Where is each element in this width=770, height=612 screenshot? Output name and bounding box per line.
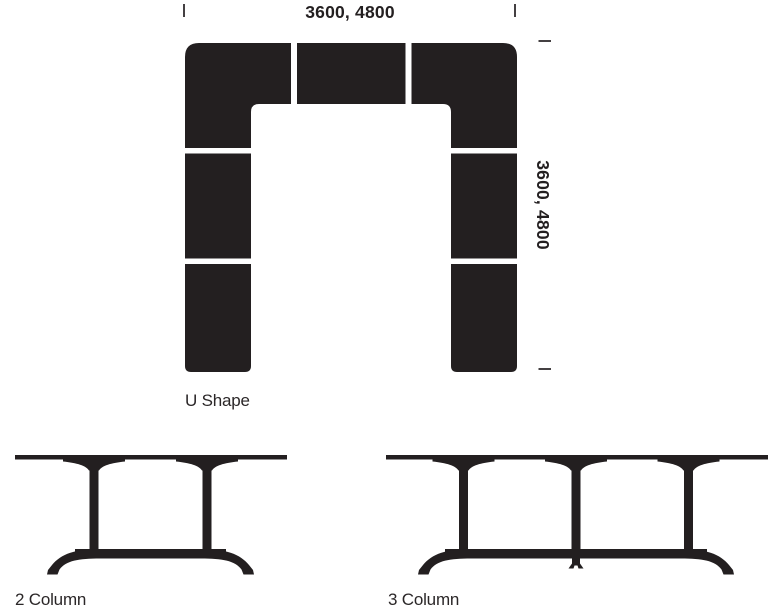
table-3col-tabletop [386, 455, 768, 460]
table-2col-right-foot [201, 549, 254, 575]
u-shape-top-left-segment [185, 43, 291, 148]
u-shape-top-center-segment [297, 43, 406, 104]
table-3col-center-leg [572, 468, 581, 551]
table-2-column-drawing [15, 455, 287, 575]
table-3col-left-leg [459, 468, 468, 551]
table-3col-left-foot [418, 549, 471, 575]
table-2col-right-leg [203, 468, 212, 551]
table-3col-center-foot [569, 558, 584, 569]
diagram-artwork [0, 0, 770, 612]
table-3-column-drawing [386, 455, 768, 575]
table-2col-left-leg [90, 468, 99, 551]
side-dimension-label: 3600, 4800 [533, 105, 551, 305]
spec-sheet: 3600, 4800 3600, 4800 U Shape 2 Column 3… [0, 0, 770, 612]
u-shape-right-middle-segment [451, 154, 517, 259]
u-shape-right-bottom-segment [451, 264, 517, 372]
table-3col-right-leg [684, 468, 693, 551]
top-dimension-label: 3600, 4800 [250, 4, 450, 22]
two-column-caption: 2 Column [15, 591, 86, 608]
table-3col-stretcher [445, 549, 707, 559]
u-shape-caption: U Shape [185, 392, 250, 409]
u-shape-plan [185, 43, 517, 372]
u-shape-left-bottom-segment [185, 264, 251, 372]
table-2col-left-foot [47, 549, 100, 575]
u-shape-left-middle-segment [185, 154, 251, 259]
table-2col-tabletop [15, 455, 287, 460]
u-shape-top-right-segment [412, 43, 518, 148]
three-column-caption: 3 Column [388, 591, 459, 608]
table-3col-right-foot [681, 549, 734, 575]
